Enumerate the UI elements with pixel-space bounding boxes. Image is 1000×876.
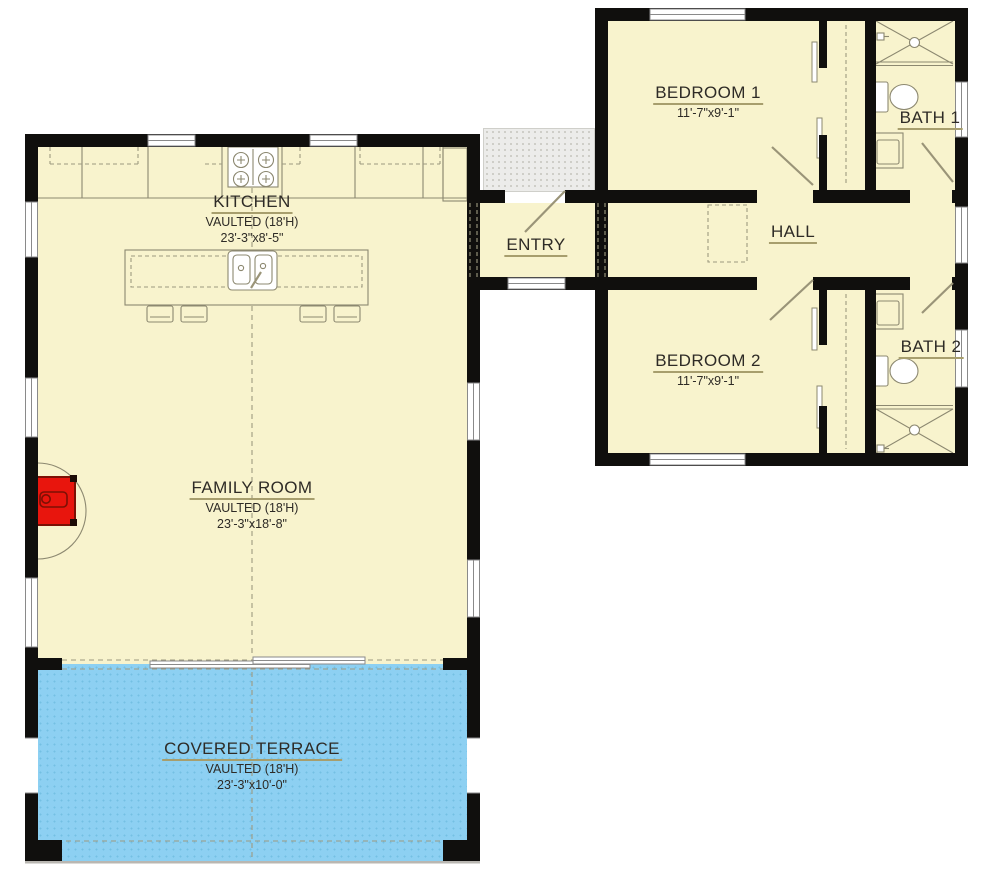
kitchen-dims: 23'-3"x8'-5" [206,231,299,245]
bedroom2-door-swing [770,280,813,320]
sink-icon [228,251,277,290]
bedroom2-closet [812,294,846,449]
window [310,135,357,146]
bath2-toilet-icon [873,356,918,386]
bedroom1-dims: 11'-7"x9'-1" [653,106,763,120]
hall-name: HALL [769,222,817,244]
plan-linework [0,0,1000,876]
window [26,202,38,257]
covered-terrace-name: COVERED TERRACE [162,739,342,761]
terrace-side-opening [467,738,480,793]
window [26,578,38,647]
window [650,9,745,20]
covered-terrace-vaulted: VAULTED (18'H) [162,762,342,776]
attic-access-dashed [708,205,747,262]
floor-plan: KITCHEN VAULTED (18'H) 23'-3"x8'-5" FAMI… [0,0,1000,876]
kitchen-island [125,250,368,322]
windows [25,9,968,793]
bath1-label: BATH 1 [898,108,963,130]
covered-terrace-label: COVERED TERRACE VAULTED (18'H) 23'-3"x10… [162,739,342,792]
kitchen-name: KITCHEN [211,192,292,214]
bedroom1-label: BEDROOM 1 11'-7"x9'-1" [653,83,763,121]
bath1-door-swing [922,143,953,182]
bedroom2-name: BEDROOM 2 [653,351,763,373]
bath1-shower-icon [876,21,953,66]
bedroom1-closet [812,25,846,186]
bedroom2-label: BEDROOM 2 11'-7"x9'-1" [653,351,763,389]
bath2-door-swing [922,283,953,313]
bath1-name: BATH 1 [898,108,963,130]
family-room-label: FAMILY ROOM VAULTED (18'H) 23'-3"x18'-8" [190,478,315,531]
terrace-edge-line [25,861,480,864]
terrace-side-opening [25,738,38,793]
range-icon [228,147,278,187]
entry-name: ENTRY [504,235,567,257]
window [508,278,565,289]
hall-label: HALL [769,222,817,244]
family-room-name: FAMILY ROOM [190,478,315,500]
covered-terrace-dims: 23'-3"x10'-0" [162,778,342,792]
kitchen-label: KITCHEN VAULTED (18'H) 23'-3"x8'-5" [206,192,299,245]
bedroom1-name: BEDROOM 1 [653,83,763,105]
family-room-dims: 23'-3"x18'-8" [190,517,315,531]
window [468,383,480,440]
window [650,454,745,465]
entry-door-swing [525,191,565,232]
bedroom2-dims: 11'-7"x9'-1" [653,374,763,388]
entry-label: ENTRY [504,235,567,257]
kitchen-vaulted: VAULTED (18'H) [206,215,299,229]
window [956,207,968,263]
bar-stools [147,306,360,322]
bedroom1-door-swing [772,147,813,185]
bath2-shower-icon [876,406,953,454]
terrace-slider-door [150,657,365,668]
window [468,560,480,617]
family-room-vaulted: VAULTED (18'H) [190,501,315,515]
window [148,135,195,146]
bath2-name: BATH 2 [899,337,964,359]
window [26,378,38,437]
bath2-label: BATH 2 [899,337,964,359]
wood-stove-icon [31,463,86,559]
